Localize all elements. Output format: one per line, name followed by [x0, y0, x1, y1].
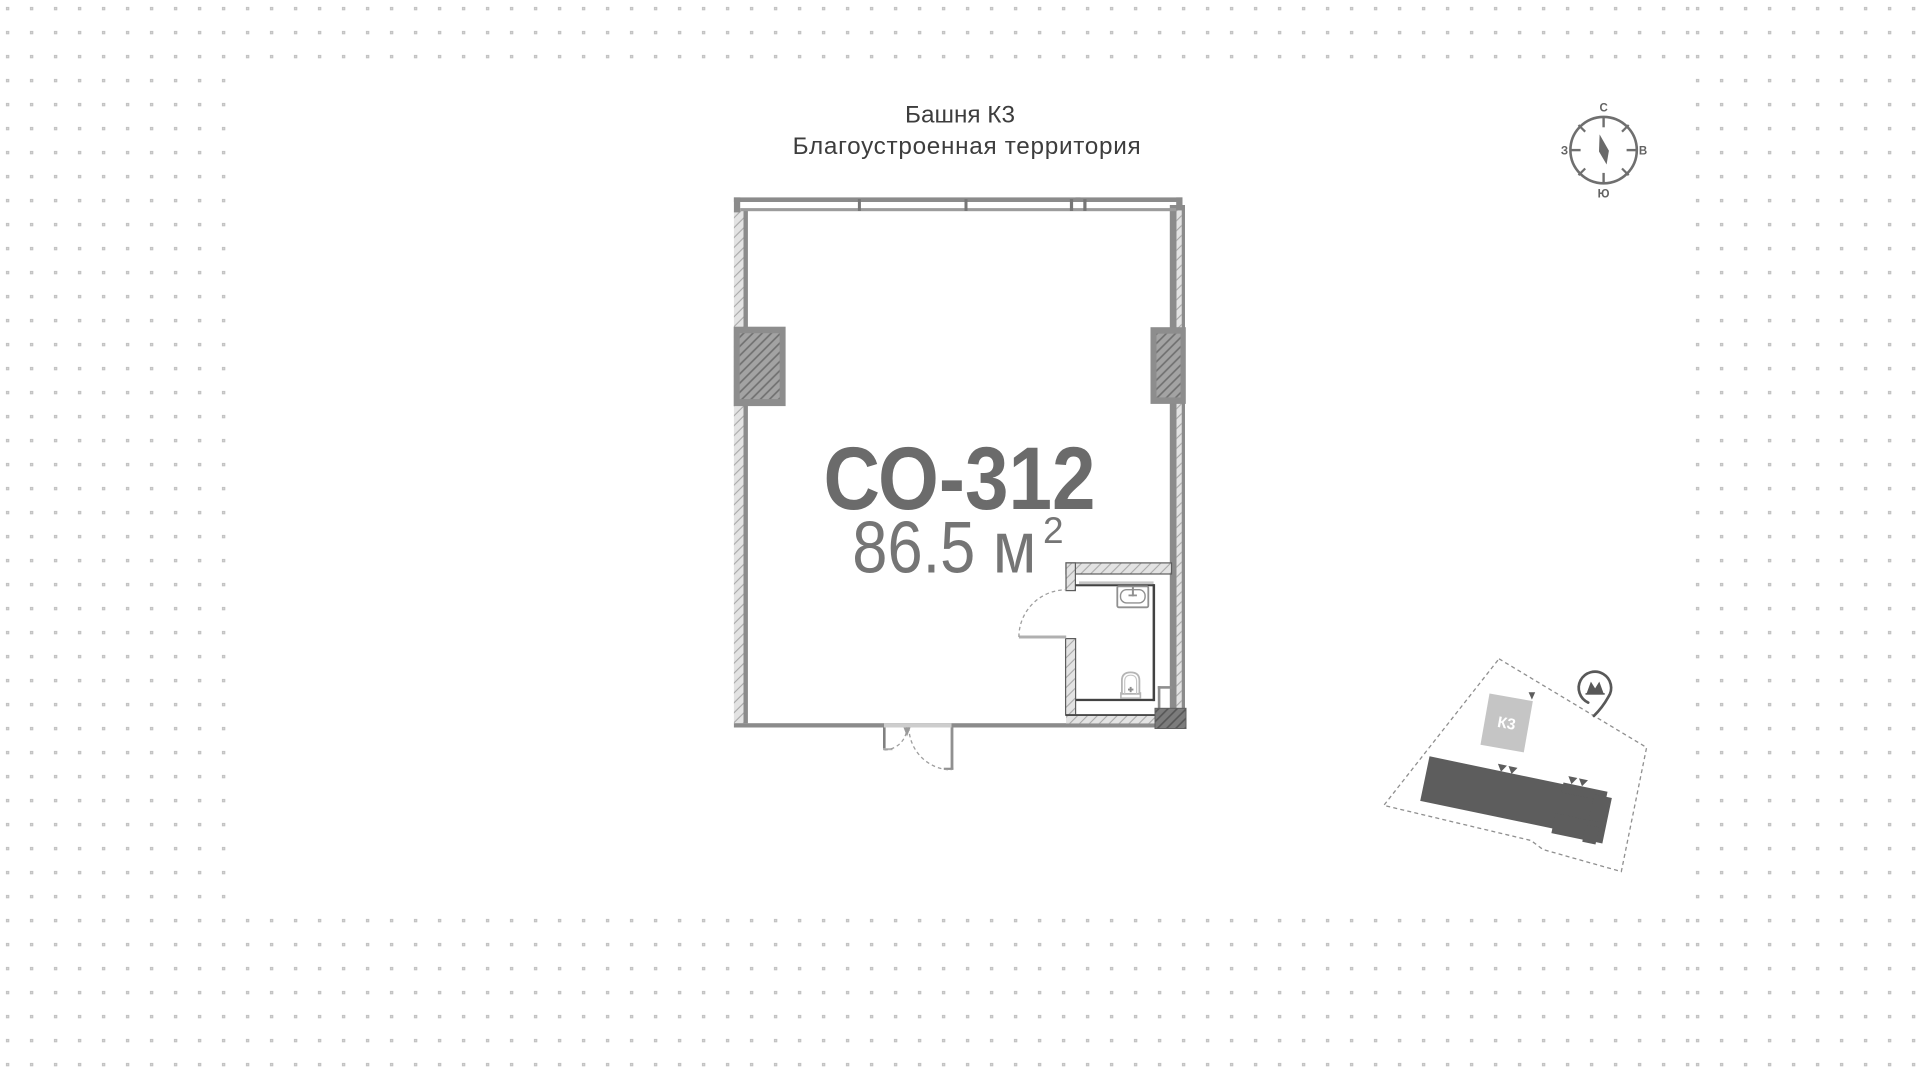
- svg-text:К3: К3: [1496, 714, 1517, 734]
- svg-text:З: З: [1561, 145, 1568, 157]
- svg-text:Благоустроенная территория: Благоустроенная территория: [793, 133, 1142, 160]
- svg-text:С: С: [1599, 103, 1607, 115]
- svg-text:2: 2: [1043, 510, 1064, 551]
- svg-text:86.5 м: 86.5 м: [852, 508, 1036, 589]
- svg-text:В: В: [1639, 145, 1647, 157]
- svg-text:Башня К3: Башня К3: [905, 102, 1015, 129]
- svg-text:Ю: Ю: [1598, 189, 1610, 201]
